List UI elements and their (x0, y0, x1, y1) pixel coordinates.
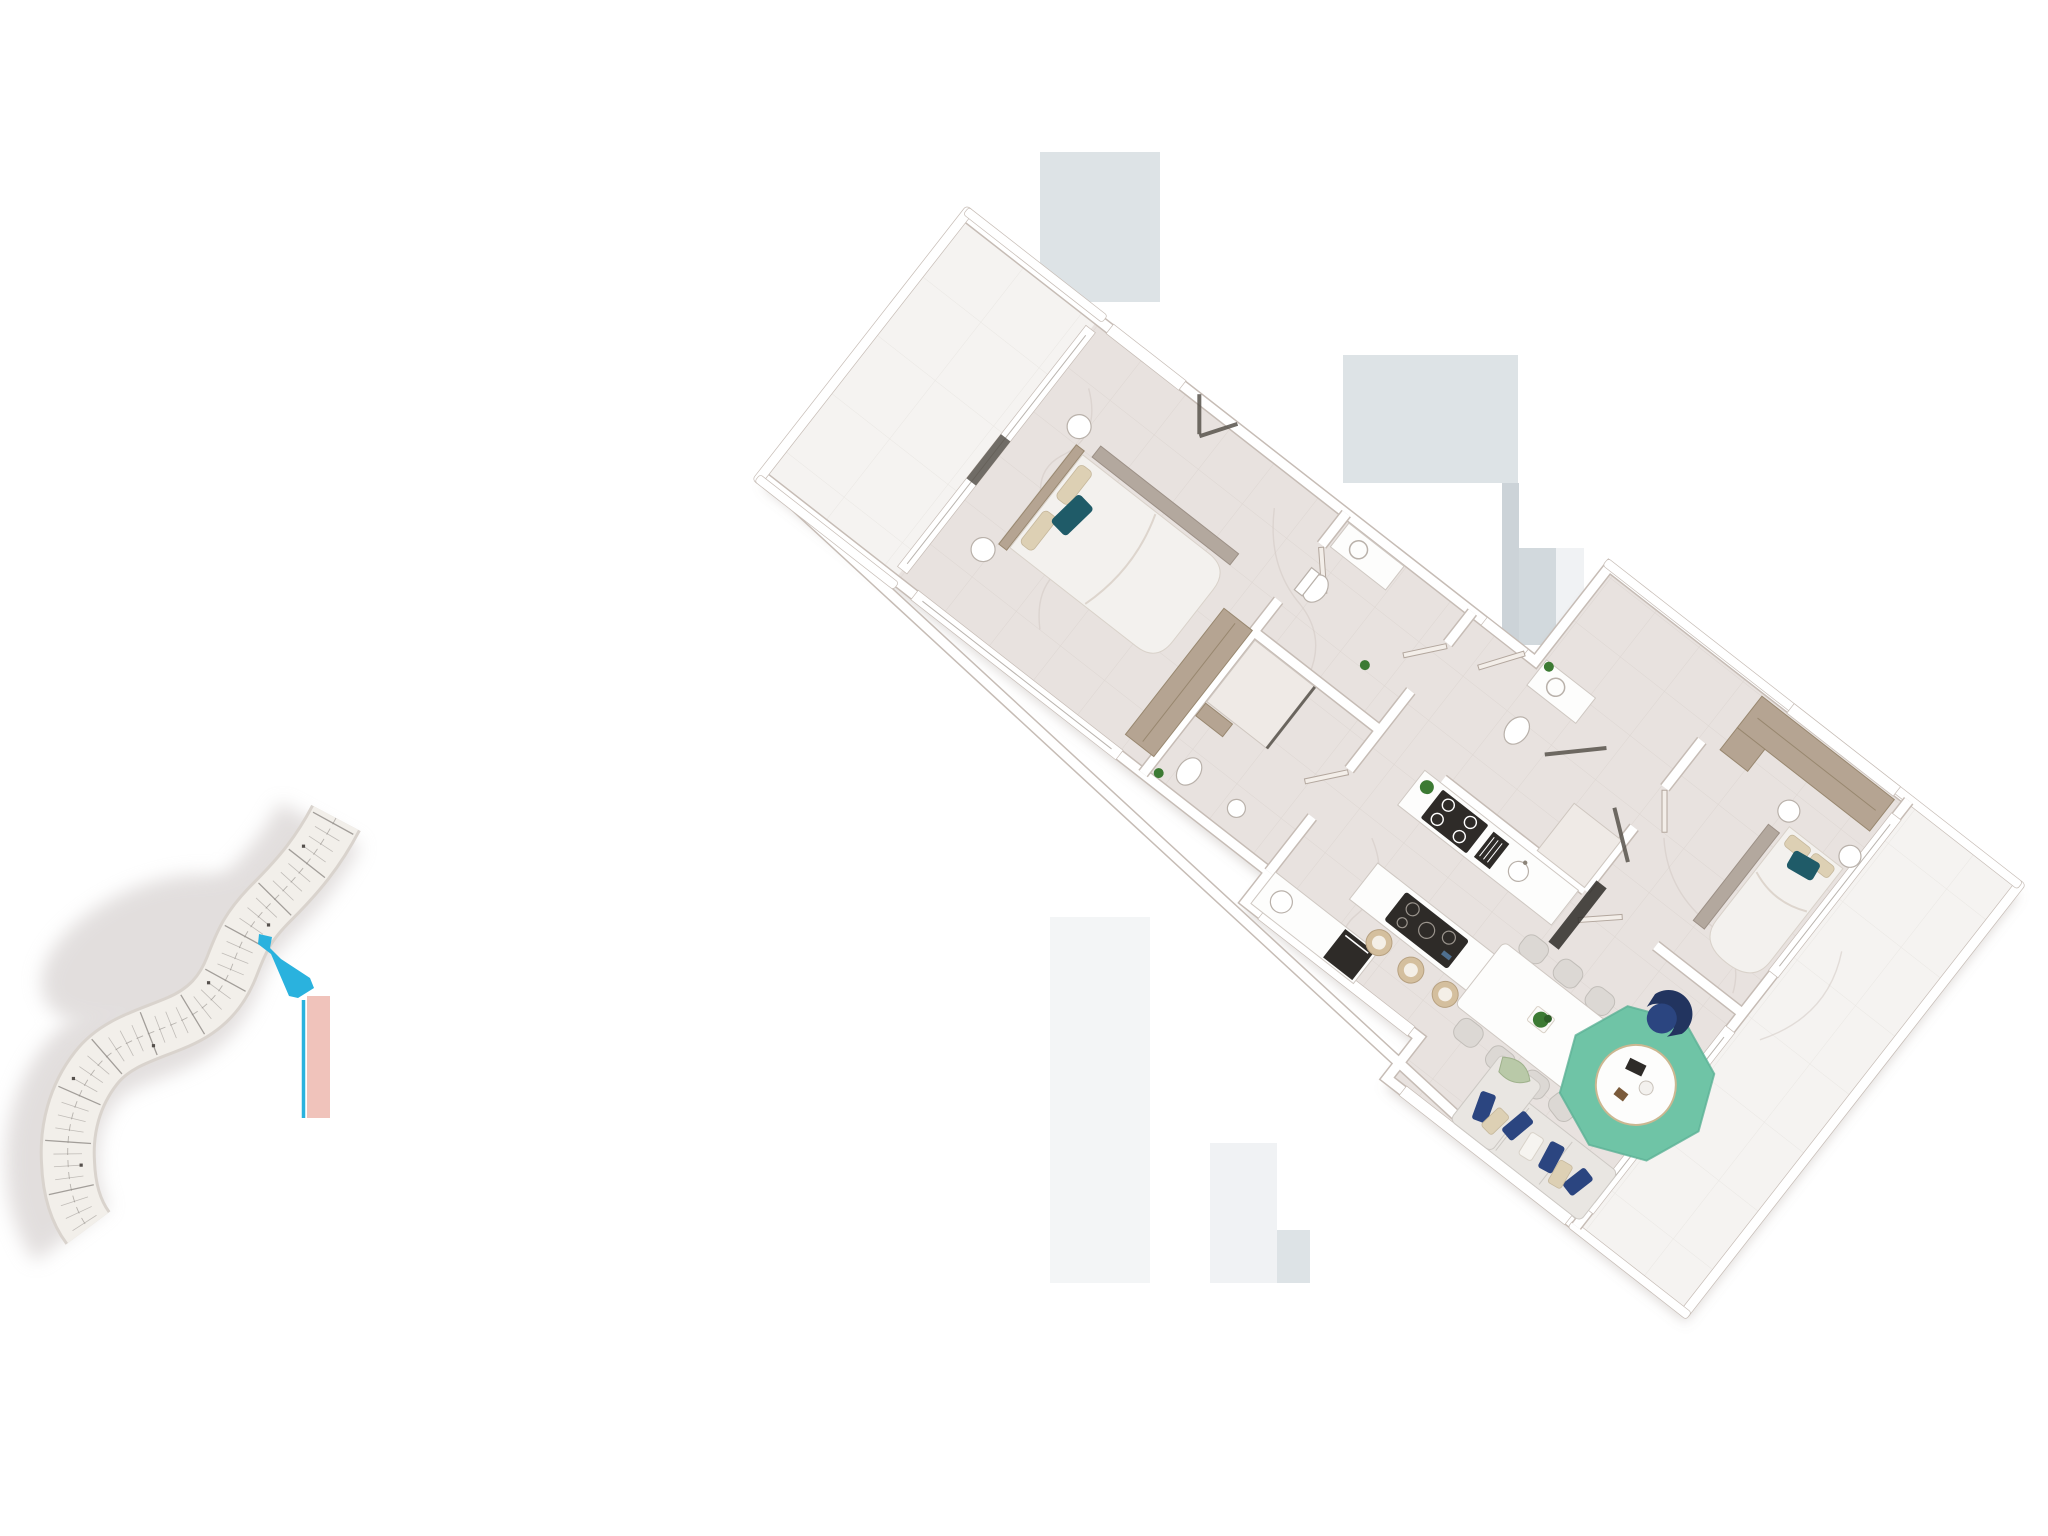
silhouette-block (1519, 548, 1556, 645)
silhouette-block (1210, 1143, 1277, 1283)
silhouette-block (1050, 917, 1150, 1283)
key-plan-core-dot (80, 1164, 83, 1167)
key-plan-core-dot (72, 1077, 75, 1080)
bathroom-3-door (1662, 790, 1667, 832)
silhouette-block (1277, 1230, 1310, 1283)
key-plan-adjacent-unit-marker (307, 996, 330, 1118)
key-plan-core-dot (267, 923, 270, 926)
key-plan (18, 812, 353, 1234)
floor-plan-3d (699, 113, 2026, 1319)
key-plan-core-dot (152, 1044, 155, 1047)
foyer-glass-door-leaf-a (1197, 394, 1201, 434)
scene (0, 0, 2048, 1536)
silhouette-block (1343, 355, 1518, 483)
key-plan-core-dot (207, 981, 210, 984)
screenshot-root (0, 0, 2048, 1536)
silhouette-block (1502, 483, 1519, 645)
key-plan-core-dot (302, 845, 305, 848)
